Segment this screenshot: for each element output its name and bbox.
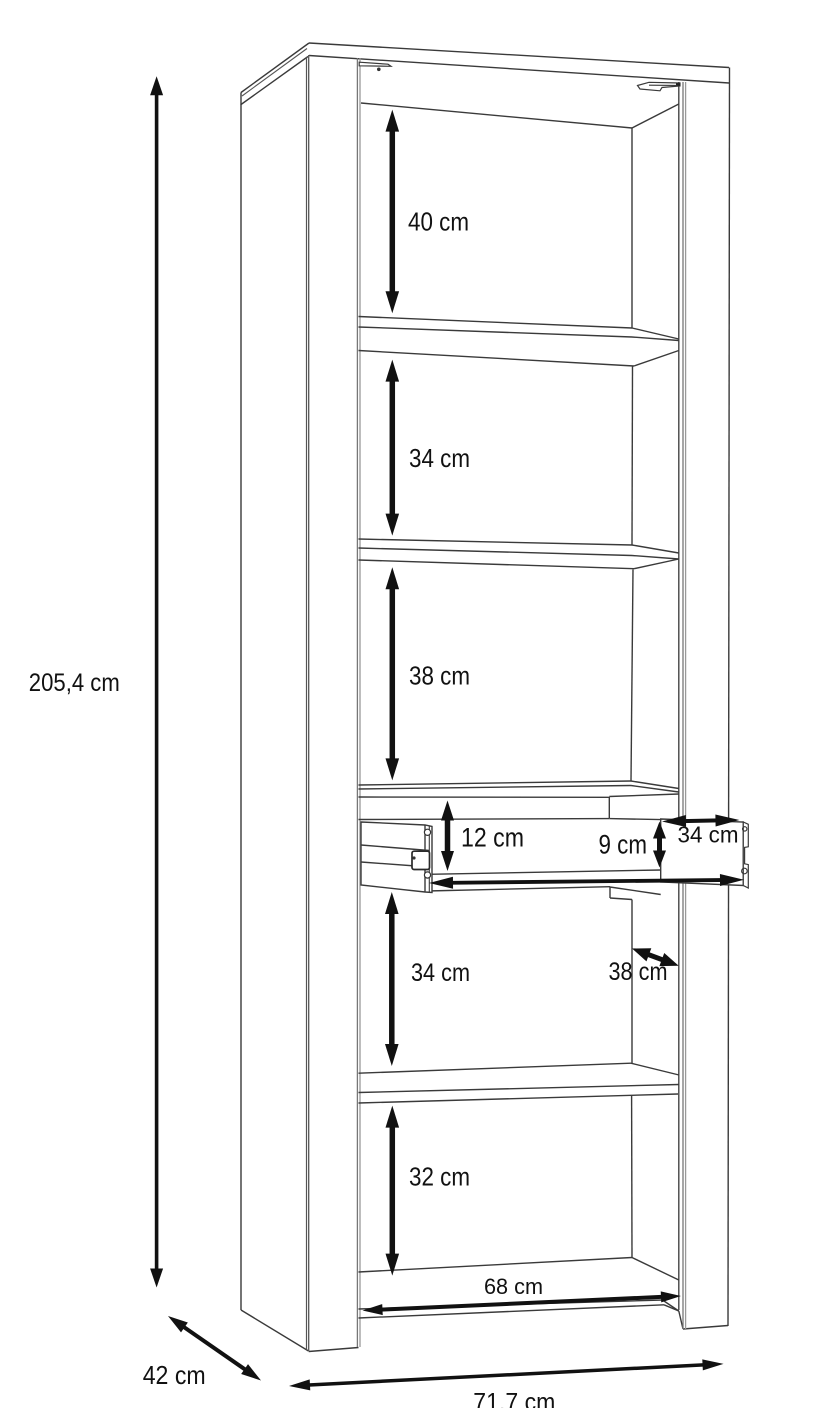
- svg-text:42 cm: 42 cm: [143, 1360, 206, 1390]
- svg-text:32 cm: 32 cm: [409, 1161, 470, 1191]
- svg-text:68 cm: 68 cm: [484, 1274, 543, 1299]
- svg-text:34 cm: 34 cm: [678, 822, 739, 848]
- svg-text:40 cm: 40 cm: [408, 207, 469, 237]
- svg-text:71,7 cm: 71,7 cm: [473, 1389, 555, 1408]
- svg-text:9 cm: 9 cm: [599, 830, 648, 860]
- svg-text:34 cm: 34 cm: [411, 959, 470, 987]
- svg-text:12 cm: 12 cm: [461, 822, 524, 852]
- svg-text:205,4 cm: 205,4 cm: [29, 669, 120, 697]
- svg-text:38 cm: 38 cm: [409, 661, 470, 691]
- svg-text:34 cm: 34 cm: [409, 443, 470, 473]
- svg-text:38 cm: 38 cm: [609, 958, 668, 986]
